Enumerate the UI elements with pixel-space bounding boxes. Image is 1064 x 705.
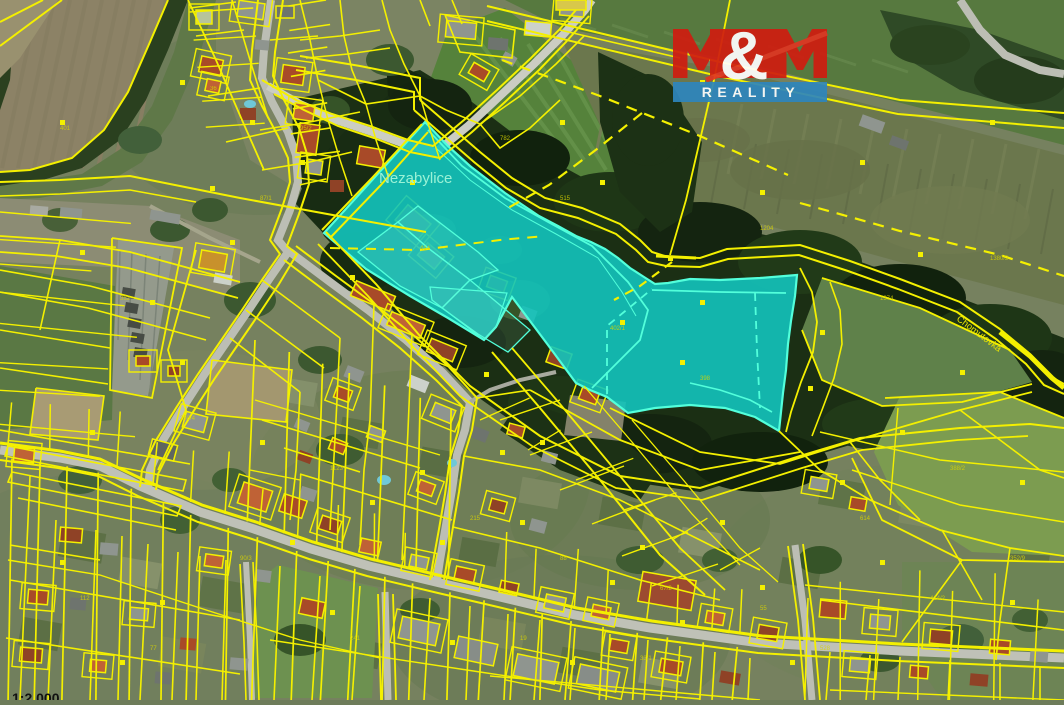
svg-text:36: 36 [210,86,217,92]
svg-text:241: 241 [350,636,361,642]
svg-text:352/9: 352/9 [1010,556,1026,562]
svg-text:1:2 000: 1:2 000 [12,690,60,700]
svg-text:515: 515 [560,196,571,202]
svg-text:401: 401 [60,126,71,132]
svg-text:402/1: 402/1 [610,326,626,332]
svg-text:352: 352 [120,296,131,302]
svg-text:215: 215 [470,516,481,522]
svg-text:782: 782 [500,136,511,142]
svg-text:1123: 1123 [330,466,344,472]
svg-text:95/2: 95/2 [300,126,312,132]
svg-text:REALITY: REALITY [702,84,800,100]
svg-text:1374: 1374 [880,296,894,302]
svg-text:112: 112 [80,596,90,602]
svg-text:614: 614 [860,516,871,522]
svg-text:260/4: 260/4 [180,416,196,422]
svg-text:19: 19 [520,636,527,642]
svg-text:55: 55 [760,606,767,612]
svg-text:67/2: 67/2 [660,586,672,592]
svg-text:87/1: 87/1 [260,196,272,202]
svg-text:88: 88 [560,556,567,562]
svg-text:90/3: 90/3 [240,556,252,562]
svg-text:398: 398 [700,376,711,382]
svg-text:1204: 1204 [760,226,774,232]
svg-text:414/2: 414/2 [930,596,946,602]
svg-text:Nezabylice: Nezabylice [379,170,452,187]
svg-text:414: 414 [420,246,431,252]
svg-text:1380/2: 1380/2 [990,256,1009,262]
svg-text:528: 528 [820,646,831,652]
svg-text:33/1: 33/1 [640,656,652,662]
svg-text:77: 77 [150,646,157,652]
svg-text:388/2: 388/2 [950,466,966,472]
